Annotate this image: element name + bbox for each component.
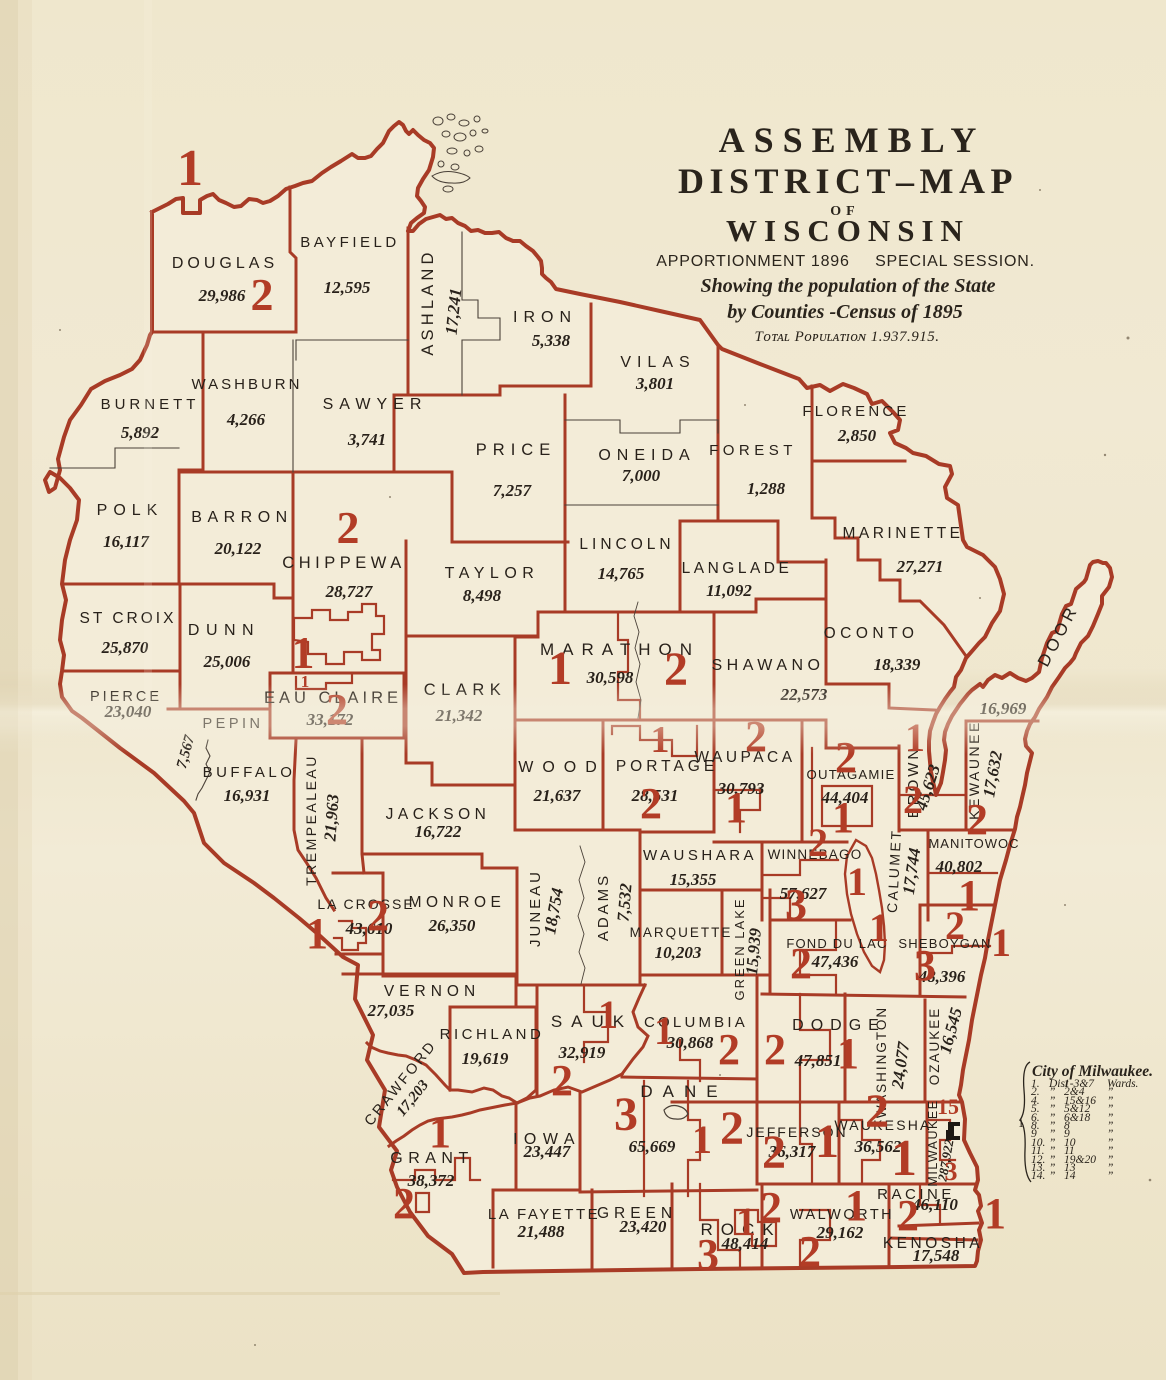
- svg-text:2: 2: [718, 1025, 740, 1074]
- svg-text:LA FAYETTE: LA FAYETTE: [488, 1206, 600, 1223]
- svg-text:2: 2: [760, 1183, 782, 1232]
- svg-text:WOOD: WOOD: [518, 759, 606, 776]
- svg-text:ASSEMBLY: ASSEMBLY: [719, 120, 986, 160]
- svg-text:7,532: 7,532: [613, 882, 635, 922]
- svg-text:8,498: 8,498: [463, 586, 502, 605]
- svg-text:ST CROIX: ST CROIX: [80, 610, 177, 627]
- svg-text:DUNN: DUNN: [188, 622, 260, 639]
- svg-text:15: 15: [937, 1094, 959, 1119]
- svg-text:BAYFIELD: BAYFIELD: [300, 234, 399, 251]
- svg-text:3: 3: [945, 1157, 958, 1186]
- svg-text:5,338: 5,338: [532, 331, 571, 350]
- svg-text:3: 3: [914, 941, 936, 990]
- svg-text:21,488: 21,488: [517, 1222, 565, 1241]
- svg-text:SAWYER: SAWYER: [323, 396, 428, 413]
- svg-text:2: 2: [865, 1085, 889, 1138]
- svg-text:LANGLADE: LANGLADE: [682, 560, 793, 577]
- svg-text:TREMPEALEAU: TREMPEALEAU: [303, 754, 319, 886]
- svg-text:1: 1: [815, 1115, 839, 1168]
- svg-text:POLK: POLK: [97, 502, 164, 519]
- svg-text:23,420: 23,420: [619, 1217, 667, 1236]
- svg-text:WASHBURN: WASHBURN: [192, 376, 303, 393]
- svg-text:DISTRICT–MAP: DISTRICT–MAP: [678, 161, 1018, 201]
- svg-text:SAUK: SAUK: [551, 1012, 633, 1031]
- svg-text:”: ”: [1107, 1170, 1113, 1182]
- svg-text:IRON: IRON: [513, 309, 577, 326]
- svg-text:1: 1: [847, 859, 867, 904]
- svg-text:29,986: 29,986: [198, 286, 246, 305]
- svg-text:17,548: 17,548: [913, 1246, 960, 1265]
- svg-text:JUNEAU: JUNEAU: [527, 869, 544, 947]
- svg-text:2: 2: [903, 777, 923, 822]
- svg-text:DANE: DANE: [640, 1082, 727, 1101]
- svg-text:ADAMS: ADAMS: [595, 873, 612, 941]
- svg-text:1: 1: [598, 992, 618, 1037]
- svg-text:2: 2: [367, 891, 389, 940]
- svg-text:7,000: 7,000: [622, 466, 661, 485]
- svg-text:1: 1: [429, 1108, 451, 1157]
- svg-text:3: 3: [614, 1088, 638, 1141]
- svg-text:1: 1: [891, 1130, 917, 1187]
- svg-text:3,801: 3,801: [635, 374, 674, 393]
- svg-text:MARQUETTE: MARQUETTE: [630, 925, 733, 940]
- svg-text:by Counties -Census of 1895: by Counties -Census of 1895: [727, 301, 963, 323]
- svg-text:VILAS: VILAS: [620, 354, 695, 371]
- svg-text:2: 2: [762, 1126, 786, 1179]
- svg-text:3: 3: [697, 1230, 719, 1279]
- svg-text:SPECIAL SESSION.: SPECIAL SESSION.: [875, 253, 1035, 270]
- svg-text:1: 1: [292, 627, 315, 678]
- svg-text:1,288: 1,288: [747, 479, 786, 498]
- svg-text:MONROE: MONROE: [409, 894, 506, 911]
- svg-text:3: 3: [785, 880, 807, 929]
- svg-text:VERNON: VERNON: [384, 983, 480, 1000]
- svg-text:5,892: 5,892: [121, 423, 160, 442]
- svg-text:2: 2: [945, 903, 965, 948]
- svg-text:1: 1: [725, 783, 747, 832]
- svg-text:WALWORTH: WALWORTH: [790, 1207, 894, 1223]
- svg-text:11,092: 11,092: [706, 581, 752, 600]
- svg-text:1: 1: [306, 909, 328, 958]
- svg-text:FLORENCE: FLORENCE: [802, 403, 909, 420]
- svg-text:20,122: 20,122: [214, 539, 262, 558]
- svg-text:4,266: 4,266: [226, 410, 266, 429]
- svg-text:14,765: 14,765: [598, 564, 645, 583]
- svg-text:BUFFALO: BUFFALO: [203, 764, 296, 781]
- svg-text:12,595: 12,595: [324, 278, 371, 297]
- svg-text:1: 1: [837, 1029, 859, 1078]
- svg-text:28,727: 28,727: [325, 582, 374, 601]
- svg-text:WAUSHARA: WAUSHARA: [643, 847, 757, 864]
- svg-text:SHAWANO: SHAWANO: [712, 657, 825, 674]
- svg-text:JACKSON: JACKSON: [386, 806, 491, 823]
- svg-text:ASHLAND: ASHLAND: [419, 248, 437, 355]
- svg-text:23,447: 23,447: [523, 1142, 572, 1161]
- svg-text:1: 1: [845, 1181, 867, 1230]
- svg-text:TAYLOR: TAYLOR: [445, 565, 540, 582]
- svg-text:2,850: 2,850: [837, 426, 877, 445]
- svg-text:21,963: 21,963: [320, 793, 342, 842]
- svg-text:26,350: 26,350: [428, 916, 476, 935]
- svg-text:WISCONSIN: WISCONSIN: [726, 213, 970, 248]
- svg-text:CHIPPEWA: CHIPPEWA: [282, 554, 405, 572]
- svg-text:2: 2: [720, 1102, 744, 1155]
- svg-text:PRICE: PRICE: [476, 441, 556, 459]
- svg-text:25,006: 25,006: [203, 652, 251, 671]
- svg-text:47,436: 47,436: [811, 952, 859, 971]
- svg-text:2: 2: [897, 1191, 919, 1240]
- svg-text:OCONTO: OCONTO: [824, 625, 919, 642]
- svg-text:16,722: 16,722: [415, 822, 462, 841]
- svg-text:2: 2: [393, 1179, 415, 1228]
- svg-text:27,271: 27,271: [896, 557, 944, 576]
- svg-text:1: 1: [1018, 1116, 1024, 1130]
- svg-text:2: 2: [251, 269, 274, 320]
- svg-text:1: 1: [991, 920, 1011, 965]
- svg-text:2: 2: [551, 1056, 573, 1105]
- svg-text:3,741: 3,741: [347, 430, 386, 449]
- svg-text:47,851: 47,851: [794, 1051, 842, 1070]
- svg-text:1: 1: [692, 1117, 712, 1162]
- svg-text:2: 2: [790, 939, 812, 988]
- svg-text:16,931: 16,931: [224, 786, 271, 805]
- svg-text:7,257: 7,257: [493, 481, 533, 500]
- svg-text:2: 2: [966, 795, 988, 844]
- svg-text:1: 1: [177, 140, 203, 197]
- svg-text:14.: 14.: [1031, 1170, 1045, 1182]
- svg-text:2: 2: [640, 779, 662, 828]
- svg-text:1: 1: [869, 905, 889, 950]
- svg-text:2: 2: [764, 1025, 786, 1074]
- svg-text:2: 2: [799, 1227, 821, 1276]
- svg-text:25,870: 25,870: [101, 638, 149, 657]
- svg-text:Showing the population of the: Showing the population of the State: [700, 275, 995, 297]
- svg-text:BARRON: BARRON: [191, 509, 292, 526]
- svg-text:15,355: 15,355: [670, 870, 717, 889]
- svg-text:16,117: 16,117: [103, 532, 150, 551]
- svg-text:APPORTIONMENT 1896: APPORTIONMENT 1896: [656, 253, 849, 270]
- svg-text:18,339: 18,339: [874, 655, 921, 674]
- svg-text:LA CROSSE: LA CROSSE: [317, 896, 414, 912]
- svg-text:Tᴏᴛᴀʟ Pᴏᴘᴜʟᴀᴛɪᴏɴ 1.937.915.: Tᴏᴛᴀʟ Pᴏᴘᴜʟᴀᴛɪᴏɴ 1.937.915.: [755, 329, 940, 345]
- svg-text:FOREST: FOREST: [709, 442, 797, 459]
- svg-text:2: 2: [337, 502, 360, 553]
- svg-text:LINCOLN: LINCOLN: [579, 536, 674, 553]
- svg-text:”: ”: [1049, 1170, 1055, 1182]
- svg-text:1: 1: [832, 793, 854, 842]
- svg-text:ONEIDA: ONEIDA: [598, 447, 695, 464]
- svg-text:MARINETTE: MARINETTE: [842, 525, 963, 542]
- svg-text:19,619: 19,619: [462, 1049, 509, 1068]
- svg-text:1: 1: [984, 1189, 1006, 1238]
- svg-text:10,203: 10,203: [655, 943, 702, 962]
- svg-text:1: 1: [736, 1199, 756, 1244]
- svg-text:2: 2: [808, 820, 828, 865]
- svg-text:21,637: 21,637: [533, 786, 582, 805]
- svg-text:1: 1: [654, 1008, 674, 1053]
- svg-text:RICHLAND: RICHLAND: [440, 1026, 545, 1043]
- svg-text:27,035: 27,035: [367, 1001, 415, 1020]
- svg-text:14: 14: [1064, 1170, 1076, 1182]
